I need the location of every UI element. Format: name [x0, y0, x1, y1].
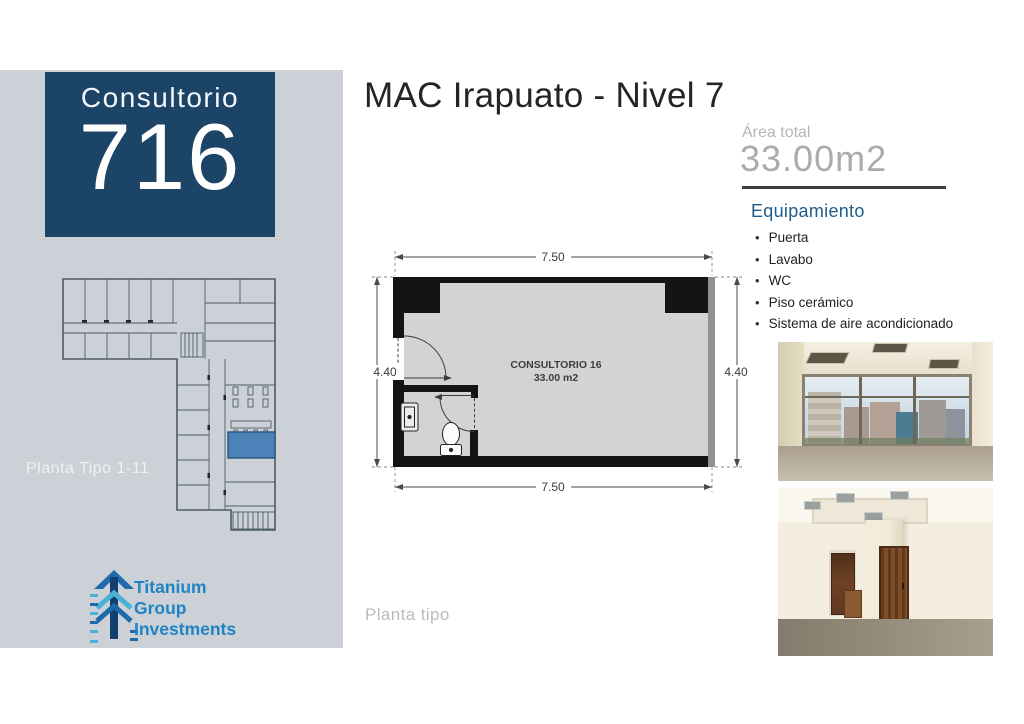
- dim-top: 7.50: [541, 250, 565, 264]
- equipment-heading: Equipamiento: [751, 201, 865, 222]
- mini-floorplan-highlighted-unit: [228, 432, 275, 458]
- ceiling-light: [890, 491, 909, 501]
- floorplan-window-wall: [708, 277, 715, 467]
- equipment-item: Piso cerámico: [755, 292, 953, 314]
- equipment-item: Sistema de aire acondicionado: [755, 313, 953, 335]
- photo1-right-wall: [972, 342, 994, 448]
- room-area-label: 33.00 m2: [534, 372, 579, 384]
- mini-floorplan-caption: Planta Tipo 1-11: [26, 460, 149, 478]
- titanium-building-icon: [90, 568, 140, 648]
- equipment-item: WC: [755, 270, 953, 292]
- ceiling-light: [805, 352, 849, 364]
- equipment-list: Puerta Lavabo WC Piso cerámico Sistema d…: [755, 227, 953, 335]
- photo1-left-wall: [778, 342, 804, 448]
- equipment-item: Puerta: [755, 227, 953, 249]
- unit-floorplan: 7.50 7.50 4.40 4.40 CONSULTORIO 16 33.00…: [370, 245, 750, 495]
- photo-office-doors-render: [778, 488, 993, 656]
- company-logo: Titanium Group Investments: [90, 568, 236, 648]
- unit-number: 716: [79, 110, 242, 204]
- photo1-floor: [778, 446, 993, 481]
- photo2-right-door: [879, 546, 909, 623]
- ceiling-light: [871, 343, 908, 353]
- divider-rule: [742, 186, 946, 189]
- photo2-wood-cabinet: [844, 590, 862, 617]
- lavabo-fixture: [401, 403, 418, 431]
- page-title: MAC Irapuato - Nivel 7: [364, 76, 725, 116]
- photo1-window: [802, 374, 972, 447]
- logo-line-2: Group: [134, 598, 236, 619]
- equipment-item: Lavabo: [755, 249, 953, 271]
- wc-fixture: [441, 423, 462, 456]
- dim-right: 4.40: [724, 365, 748, 379]
- mini-floorplan: [55, 275, 277, 535]
- ceiling-light: [928, 359, 960, 369]
- company-logo-text: Titanium Group Investments: [134, 577, 236, 640]
- logo-line-3: Investments: [134, 619, 236, 640]
- area-total-value: 33.00m2: [740, 138, 887, 180]
- photo2-floor: [778, 619, 993, 656]
- ceiling-light: [836, 493, 855, 503]
- floorplan-caption: Planta tipo: [365, 605, 450, 625]
- room-name-label: CONSULTORIO 16: [510, 359, 601, 371]
- photo-office-window-render: [778, 342, 993, 481]
- dim-bottom: 7.50: [541, 480, 565, 494]
- slide-canvas: { "slide": { "title": "MAC Irapuato - Ni…: [0, 0, 1024, 724]
- unit-number-card: Consultorio 716: [45, 72, 275, 237]
- ceiling-light: [804, 501, 821, 510]
- door-handle: [902, 583, 904, 589]
- logo-line-1: Titanium: [134, 577, 236, 598]
- sidebar-panel: Consultorio 716: [0, 70, 343, 648]
- dim-left: 4.40: [373, 365, 397, 379]
